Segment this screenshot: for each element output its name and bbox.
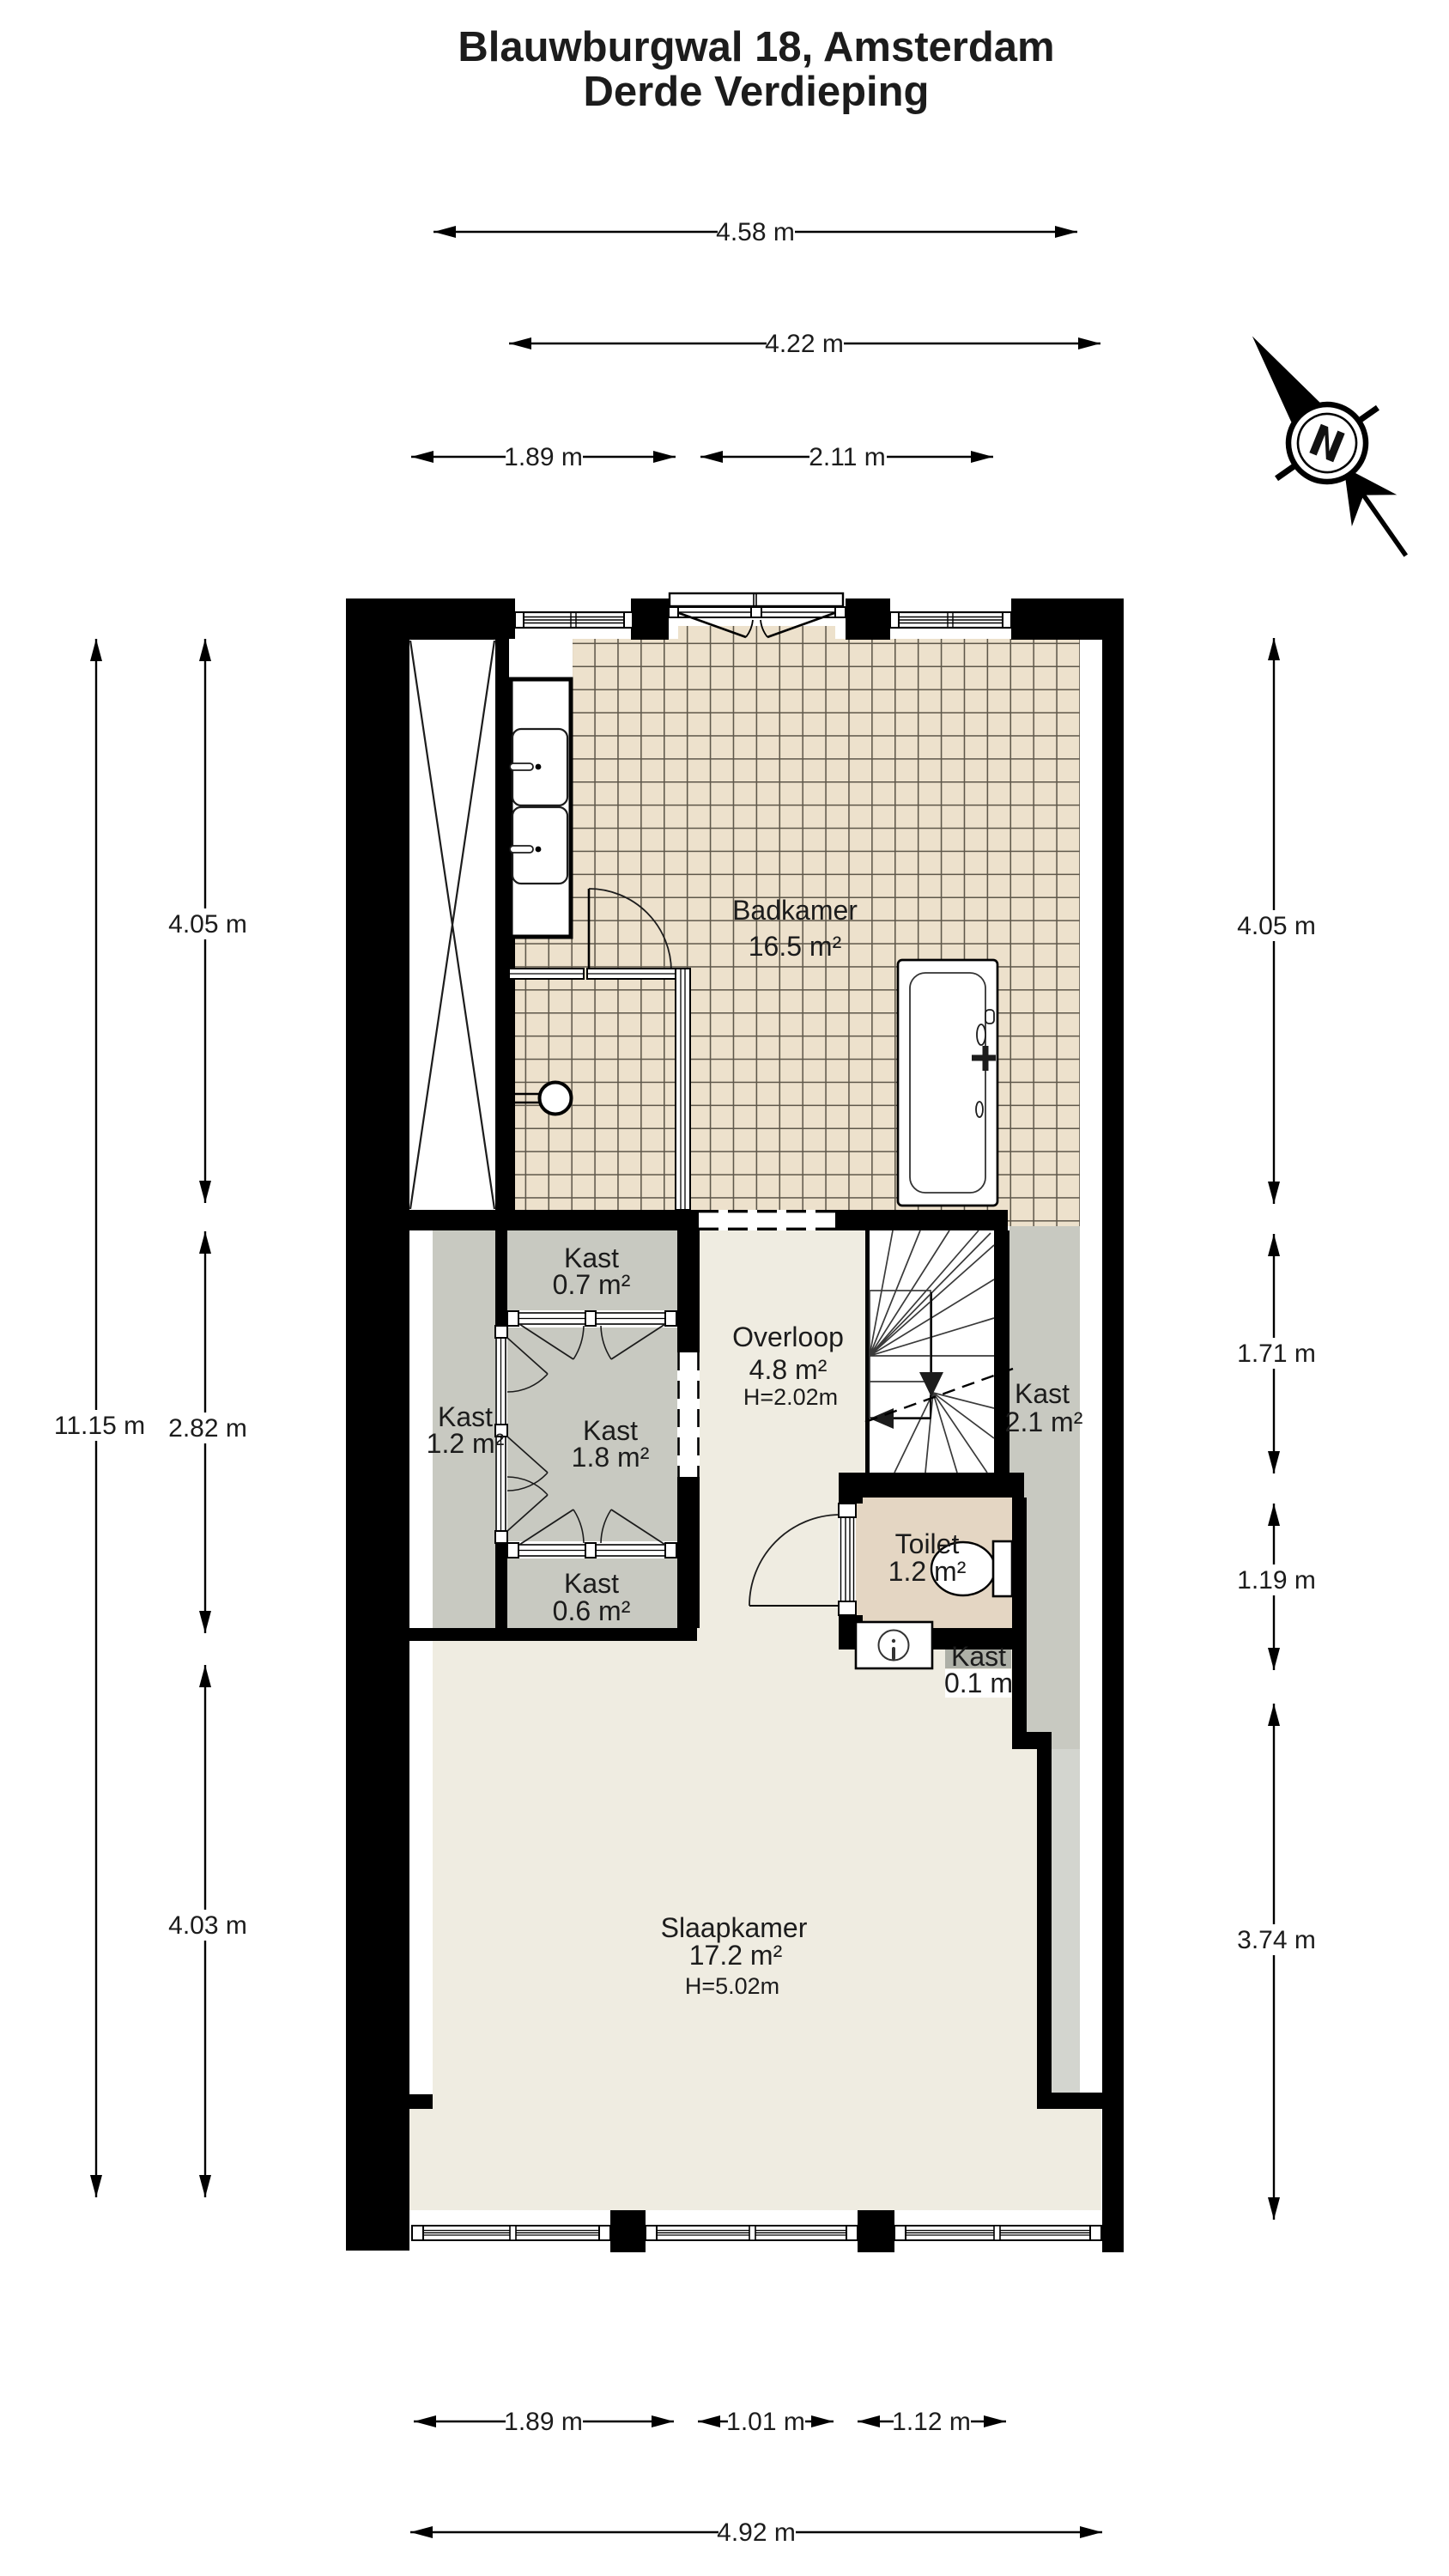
svg-text:4.22 m: 4.22 m: [765, 330, 844, 358]
svg-text:H=5.02m: H=5.02m: [685, 1973, 779, 1999]
svg-text:Toilet: Toilet: [895, 1528, 960, 1559]
svg-text:16.5 m²: 16.5 m²: [749, 931, 842, 962]
svg-text:1.89 m: 1.89 m: [504, 2408, 583, 2436]
svg-text:Blauwburgwal 18, Amsterdam: Blauwburgwal 18, Amsterdam: [458, 24, 1054, 70]
svg-text:4.03 m: 4.03 m: [168, 1911, 247, 1940]
svg-text:2.82 m: 2.82 m: [168, 1414, 247, 1443]
svg-text:1.71 m: 1.71 m: [1237, 1340, 1316, 1368]
svg-text:1.19 m: 1.19 m: [1237, 1566, 1316, 1595]
svg-text:4.8 m²: 4.8 m²: [749, 1354, 828, 1385]
svg-text:3.74 m: 3.74 m: [1237, 1926, 1316, 1954]
svg-text:1.01 m: 1.01 m: [726, 2408, 805, 2436]
svg-text:1.89 m: 1.89 m: [504, 443, 583, 471]
svg-text:17.2 m²: 17.2 m²: [689, 1940, 783, 1971]
svg-text:4.05 m: 4.05 m: [1237, 912, 1316, 940]
svg-text:Kast: Kast: [564, 1568, 619, 1599]
svg-text:1.2 m²: 1.2 m²: [888, 1556, 967, 1587]
svg-text:2.11 m: 2.11 m: [809, 443, 886, 471]
svg-text:1.12 m: 1.12 m: [892, 2408, 971, 2436]
svg-text:4.58 m: 4.58 m: [716, 218, 795, 246]
svg-text:4.05 m: 4.05 m: [168, 910, 247, 939]
svg-text:11.15 m: 11.15 m: [54, 1412, 145, 1440]
svg-text:Overloop: Overloop: [732, 1321, 844, 1352]
svg-text:Kast: Kast: [1015, 1378, 1070, 1409]
svg-text:Badkamer: Badkamer: [732, 895, 858, 926]
svg-text:0.1 m: 0.1 m: [944, 1668, 1013, 1698]
svg-text:1.2 m²: 1.2 m²: [427, 1428, 505, 1459]
svg-text:2.1 m²: 2.1 m²: [1005, 1406, 1083, 1437]
svg-text:H=2.02m: H=2.02m: [743, 1384, 838, 1410]
svg-text:0.6 m²: 0.6 m²: [553, 1595, 631, 1626]
svg-text:4.92 m: 4.92 m: [717, 2518, 796, 2547]
svg-text:Slaapkamer: Slaapkamer: [661, 1912, 808, 1943]
svg-text:1.8 m²: 1.8 m²: [572, 1442, 650, 1473]
svg-text:Derde Verdieping: Derde Verdieping: [583, 69, 929, 115]
svg-text:0.7 m²: 0.7 m²: [553, 1269, 631, 1300]
